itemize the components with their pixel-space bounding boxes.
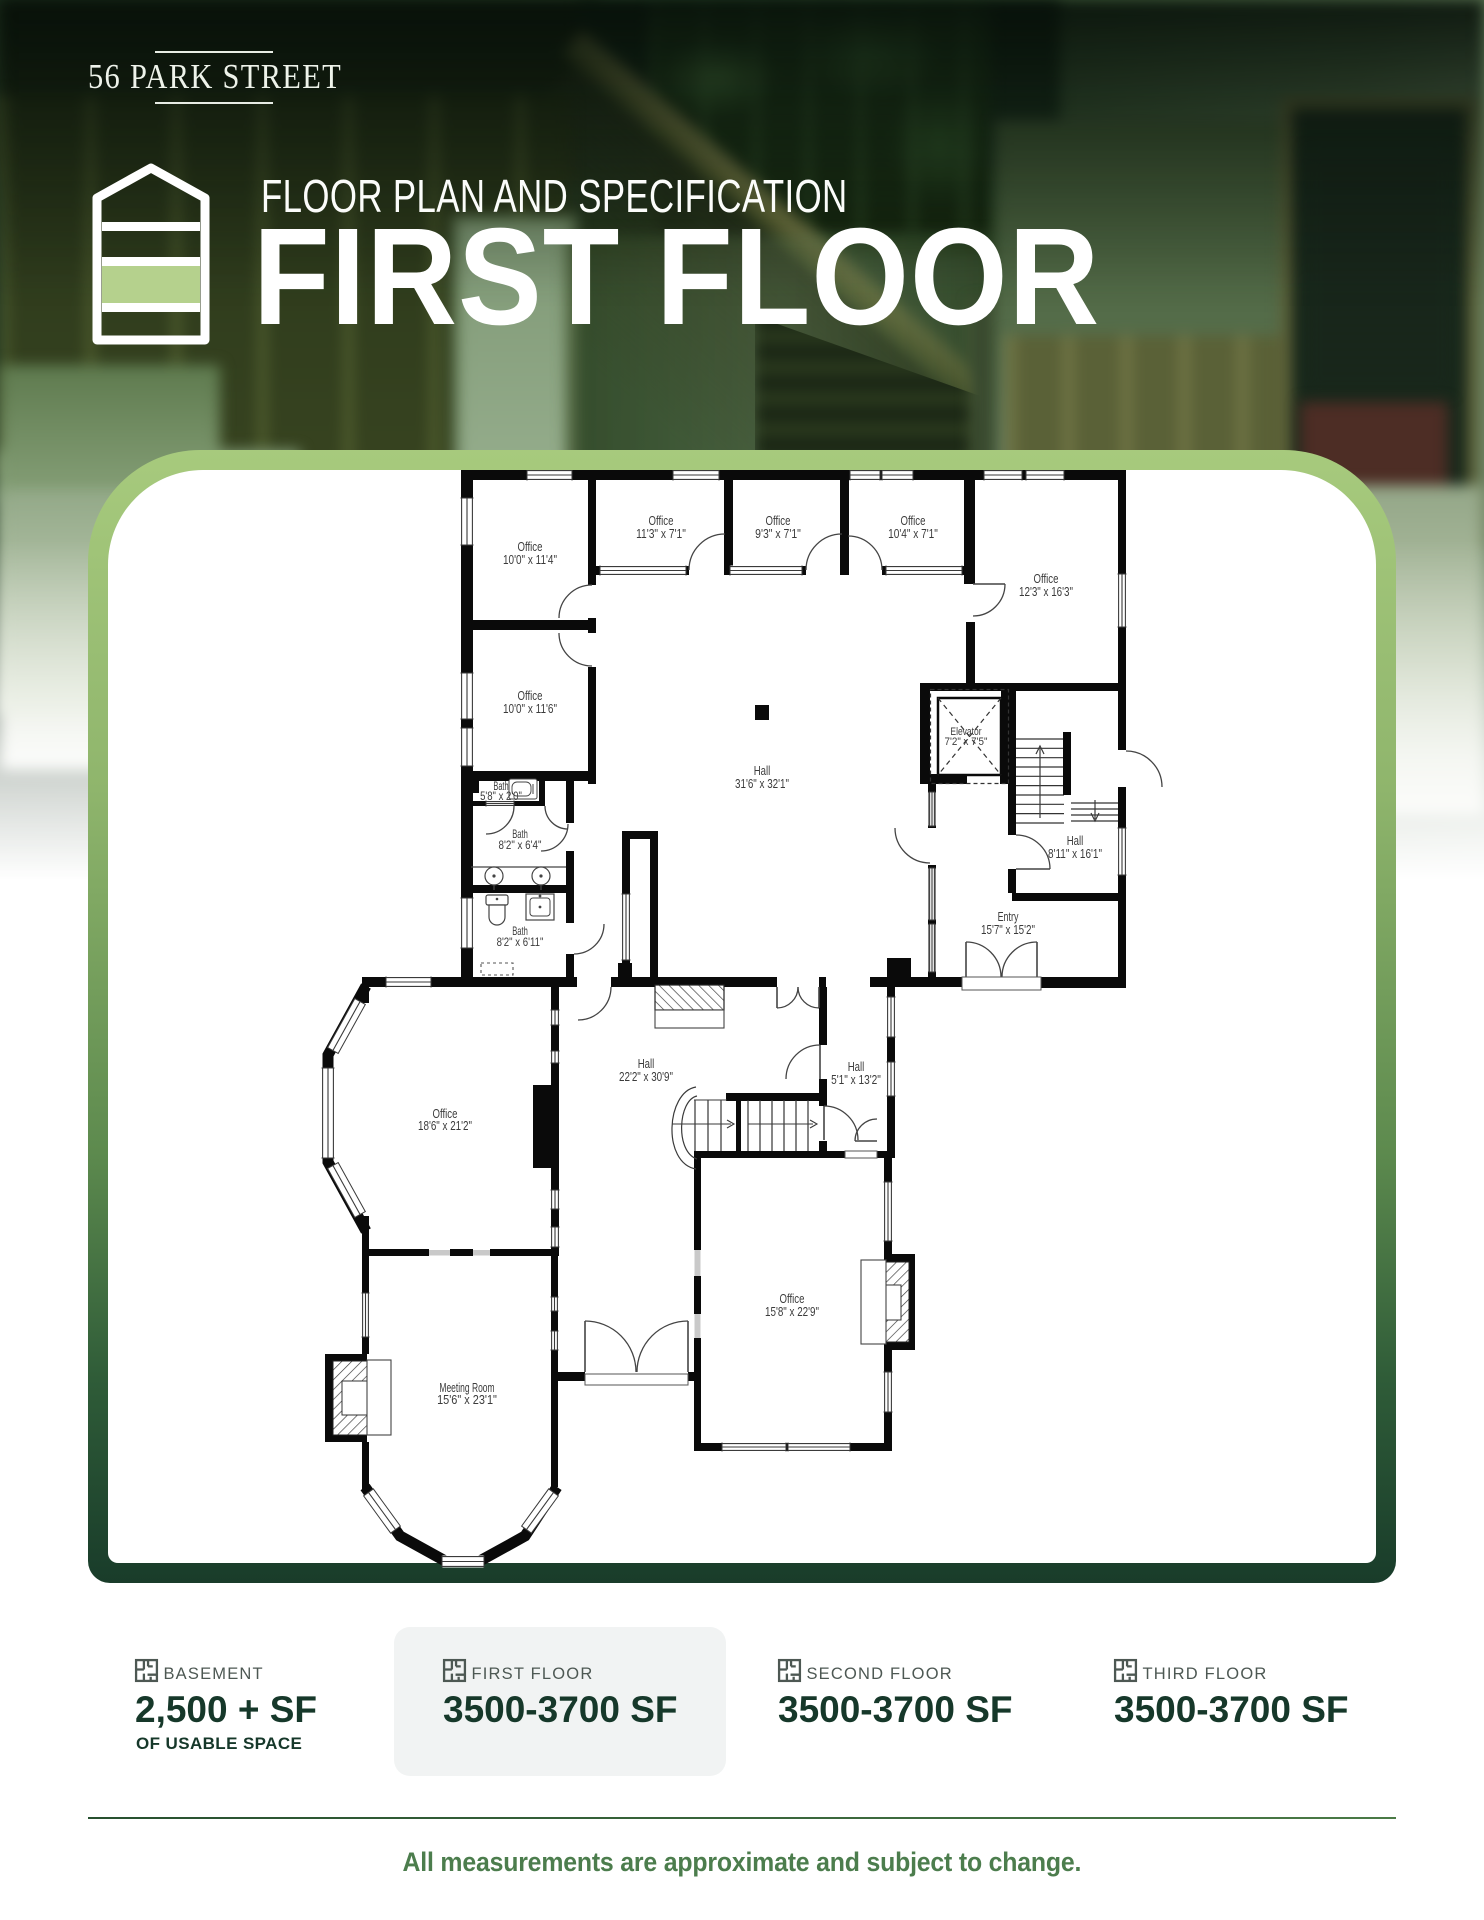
svg-text:11'3" x 7'1": 11'3" x 7'1" [636, 526, 686, 541]
svg-text:31'6" x 32'1": 31'6" x 32'1" [735, 776, 789, 791]
svg-text:10'0" x 11'6": 10'0" x 11'6" [503, 701, 557, 716]
svg-text:10'0" x 11'4": 10'0" x 11'4" [503, 552, 557, 567]
svg-text:18'6" x 21'2": 18'6" x 21'2" [418, 1118, 472, 1133]
svg-text:8'11" x 16'1": 8'11" x 16'1" [1048, 846, 1102, 861]
svg-text:10'4" x 7'1": 10'4" x 7'1" [888, 526, 938, 541]
svg-text:5'1" x 13'2": 5'1" x 13'2" [831, 1072, 881, 1087]
svg-text:22'2" x 30'9": 22'2" x 30'9" [619, 1069, 673, 1084]
svg-text:8'2" x 6'11": 8'2" x 6'11" [497, 935, 544, 949]
svg-text:9'3" x 7'1": 9'3" x 7'1" [755, 526, 801, 541]
svg-text:12'3" x 16'3": 12'3" x 16'3" [1019, 584, 1073, 599]
svg-text:7'2" x 7'5": 7'2" x 7'5" [945, 736, 988, 748]
svg-text:15'8" x 22'9": 15'8" x 22'9" [765, 1304, 819, 1319]
svg-text:5'8" x 2'0": 5'8" x 2'0" [480, 791, 522, 803]
svg-text:15'6" x 23'1": 15'6" x 23'1" [437, 1392, 497, 1407]
svg-text:8'2" x 6'4": 8'2" x 6'4" [499, 838, 542, 852]
svg-text:15'7" x 15'2": 15'7" x 15'2" [981, 922, 1035, 937]
